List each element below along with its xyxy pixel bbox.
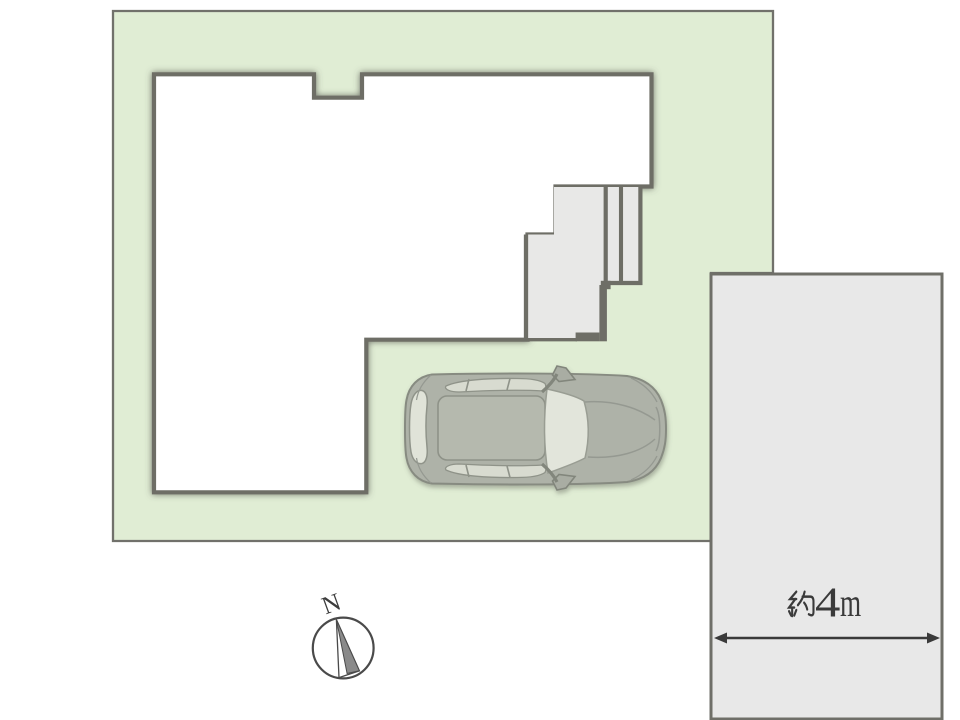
svg-text:m: m bbox=[840, 582, 861, 625]
svg-text:N: N bbox=[318, 589, 344, 621]
svg-text:4: 4 bbox=[815, 579, 840, 626]
